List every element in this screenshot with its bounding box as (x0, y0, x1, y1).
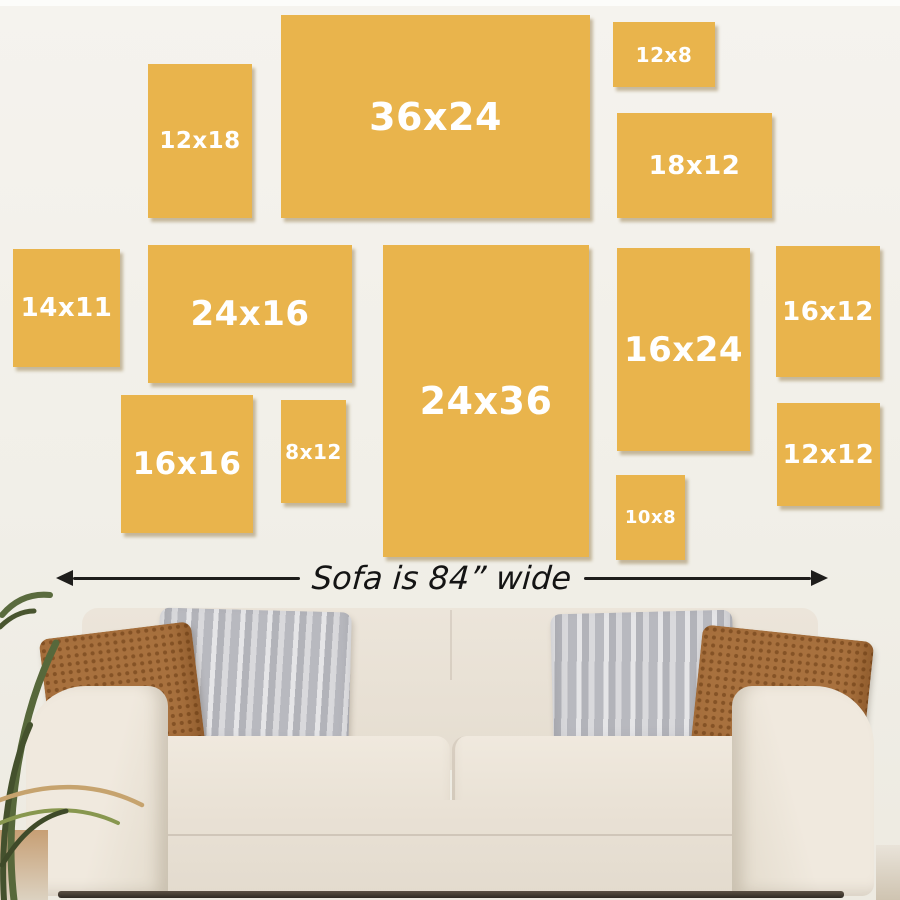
frame-16x16: 16x16 (121, 395, 253, 533)
frame-12x12: 12x12 (777, 403, 880, 506)
frame-size-label: 16x24 (624, 330, 743, 370)
frame-size-label: 36x24 (369, 95, 502, 139)
sofa-arm-right (732, 686, 874, 896)
frame-16x24: 16x24 (617, 248, 750, 451)
frame-size-label: 24x36 (420, 379, 553, 423)
frame-size-label: 12x12 (783, 440, 875, 470)
frame-size-label: 8x12 (285, 440, 342, 464)
frame-8x12: 8x12 (281, 400, 346, 503)
frame-36x24: 36x24 (281, 15, 590, 218)
frame-size-label: 16x12 (782, 297, 874, 327)
wall-art-size-guide: { "frames": [ { "label": "12x18", "width… (0, 0, 900, 900)
frame-24x36: 24x36 (383, 245, 589, 557)
frame-14x11: 14x11 (13, 249, 120, 367)
plant-leaves-icon (0, 565, 170, 900)
sofa-floor-shadow (58, 891, 844, 898)
frame-size-label: 12x18 (159, 128, 240, 154)
floor-sliver-right (876, 845, 900, 900)
sofa-width-dimension-arrow: Sofa is 84” wide (56, 556, 828, 600)
frame-24x16: 24x16 (148, 245, 352, 383)
sofa-skirt (50, 800, 850, 894)
arrow-line-right (584, 577, 811, 580)
frame-12x18: 12x18 (148, 64, 252, 218)
frame-16x12: 16x12 (776, 246, 880, 377)
arrowhead-right-icon (811, 570, 828, 586)
frame-size-label: 18x12 (649, 151, 741, 181)
frame-size-label: 14x11 (21, 293, 113, 323)
frame-10x8: 10x8 (616, 475, 685, 560)
frame-size-label: 24x16 (190, 294, 309, 334)
frame-12x8: 12x8 (613, 22, 715, 87)
frame-size-label: 12x8 (636, 43, 693, 67)
frame-size-label: 16x16 (133, 446, 242, 482)
wall-top-highlight (0, 0, 900, 6)
frame-18x12: 18x12 (617, 113, 772, 218)
sofa-width-caption: Sofa is 84” wide (311, 559, 573, 597)
frame-size-label: 10x8 (625, 507, 676, 528)
